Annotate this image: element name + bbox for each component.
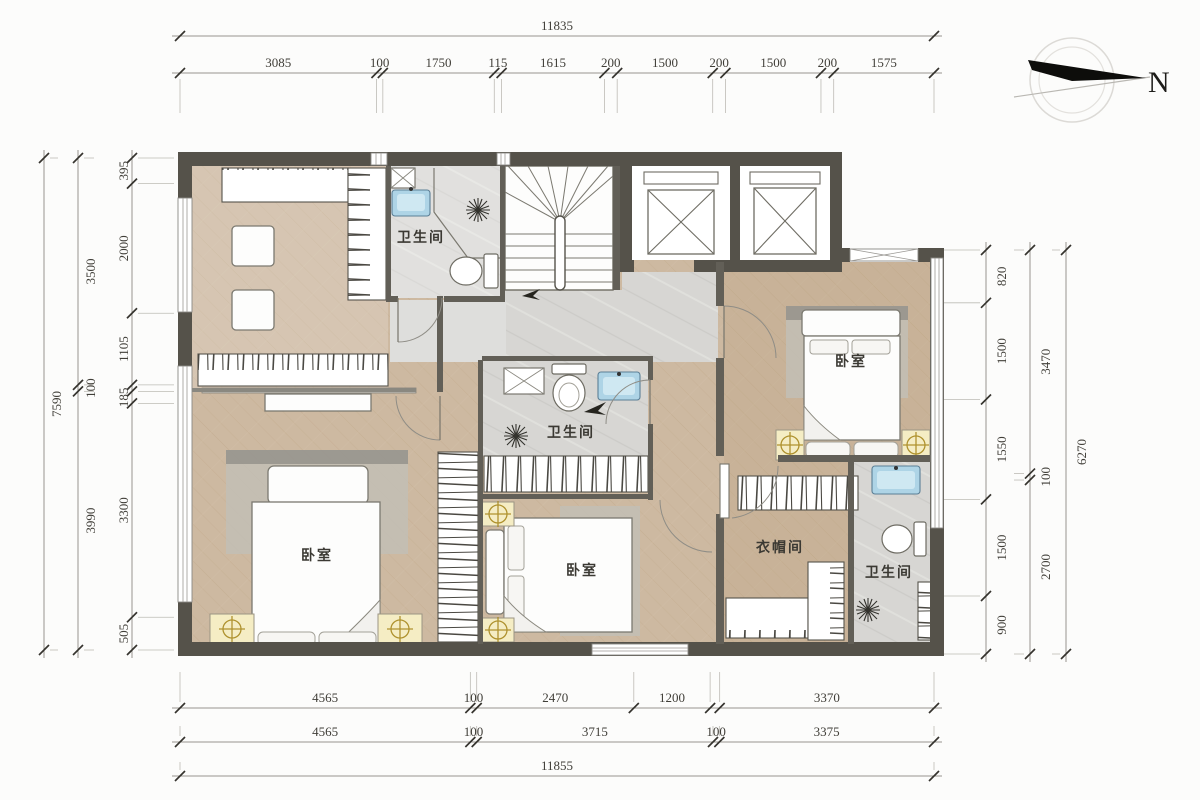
north-arrow-icon	[1028, 60, 1146, 81]
headboard	[268, 466, 368, 504]
dimension-label: 1500	[994, 535, 1009, 561]
dimension-label: 3300	[116, 497, 131, 523]
floor-plan-drawing: 卫生间 卫生间 卫生间 卧室 卧室 卧室 衣帽间 118353085100175…	[0, 0, 1200, 800]
dimension-label: 200	[601, 55, 621, 70]
dimension-label: 3085	[265, 55, 291, 70]
dimension-label: 3500	[83, 258, 98, 284]
dimension-label: 7590	[49, 391, 64, 417]
dimension-label: 1500	[994, 338, 1009, 364]
north-label: N	[1148, 66, 1170, 99]
dresser	[265, 394, 371, 411]
window-left-north	[178, 198, 192, 312]
bed-middle	[482, 501, 632, 643]
pillow	[508, 526, 524, 570]
dimension-label: 395	[116, 161, 131, 181]
room-label-bedroom-left: 卧室	[301, 547, 333, 564]
chair	[232, 290, 274, 330]
room-label-cloakroom: 衣帽间	[756, 539, 804, 556]
shower-icon	[856, 598, 880, 622]
faucet	[409, 187, 413, 191]
pillow	[852, 340, 890, 354]
door-leaf-cloakroom	[720, 464, 729, 518]
dimension-label: 1575	[871, 55, 897, 70]
dimension-label: 200	[709, 55, 729, 70]
window-bottom	[592, 644, 688, 655]
faucet	[894, 466, 898, 470]
chair	[232, 226, 274, 266]
toilet-tank	[484, 254, 498, 288]
toilet	[450, 257, 482, 285]
dimension-label: 4565	[312, 724, 338, 739]
room-label-bathroom-top: 卫生间	[397, 229, 445, 246]
dimension-label: 100	[370, 55, 390, 70]
floorplan-page: 卫生间 卫生间 卫生间 卧室 卧室 卧室 衣帽间 118353085100175…	[0, 0, 1200, 800]
window-top-small	[371, 153, 387, 165]
elevator-2	[740, 166, 830, 260]
dimension-label: 2700	[1038, 554, 1053, 580]
dimension-label: 3370	[814, 690, 840, 705]
dimension-label: 100	[1038, 467, 1053, 487]
dimension-label: 1500	[760, 55, 786, 70]
dimension-label: 100	[464, 724, 484, 739]
dimension-label: 1615	[540, 55, 566, 70]
dimension-label: 900	[994, 615, 1009, 635]
dimension-label: 200	[818, 55, 838, 70]
dimension-label: 2470	[542, 690, 568, 705]
dimension-label: 4565	[312, 690, 338, 705]
dimension-label: 3375	[814, 724, 840, 739]
shower-icon	[466, 198, 490, 222]
dimension-label: 1105	[116, 336, 131, 362]
dimension-label: 100	[83, 378, 98, 398]
pillow	[810, 340, 848, 354]
dimension-label: 115	[488, 55, 507, 70]
room-label-bedroom-right: 卧室	[835, 353, 867, 370]
toilet	[553, 375, 585, 411]
window-left-south	[178, 366, 192, 602]
dimension-label: 505	[116, 624, 131, 644]
dimension-label: 11835	[541, 18, 573, 33]
dimension-label: 1750	[426, 55, 452, 70]
room-label-bathroom-middle: 卫生间	[547, 424, 595, 441]
shower-icon	[504, 424, 528, 448]
stair-handrail	[555, 216, 565, 290]
dimension-label: 1500	[652, 55, 678, 70]
dimension-label: 6270	[1074, 439, 1089, 465]
window-top-small-2	[497, 153, 510, 165]
window-right	[931, 258, 943, 528]
faucet	[617, 372, 621, 376]
toilet-tank	[552, 364, 586, 374]
dimension-label: 11855	[541, 758, 573, 773]
north-compass: N	[1014, 38, 1170, 122]
elevator-1	[632, 166, 730, 260]
headboard	[802, 310, 900, 336]
dimension-label: 1550	[994, 436, 1009, 462]
hall-floor	[505, 290, 718, 362]
dimension-label: 3470	[1038, 349, 1053, 375]
dimension-label: 1200	[659, 690, 685, 705]
headboard	[486, 530, 504, 614]
dimension-label: 3990	[83, 508, 98, 534]
dimension-label: 3715	[582, 724, 608, 739]
window-x-topright	[850, 249, 918, 261]
room-label-bathroom-right: 卫生间	[865, 564, 913, 581]
dimension-label: 100	[464, 690, 484, 705]
toilet	[882, 525, 912, 553]
dimension-label: 820	[994, 267, 1009, 287]
staircase	[505, 166, 613, 290]
dimension-label: 185	[116, 388, 131, 408]
room-label-bedroom-middle: 卧室	[566, 562, 598, 579]
dimension-label: 2000	[116, 235, 131, 261]
dimension-label: 100	[706, 724, 726, 739]
toilet-tank	[914, 522, 926, 556]
